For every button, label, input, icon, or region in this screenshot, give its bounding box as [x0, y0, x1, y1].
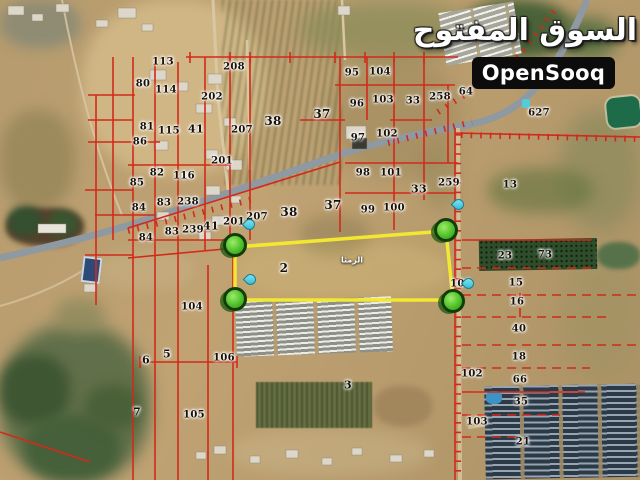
corner-marker — [434, 218, 458, 242]
corner-marker — [441, 289, 465, 313]
corner-marker — [223, 233, 247, 257]
corner-marker — [223, 287, 247, 311]
pin-arrow-icon — [451, 197, 467, 213]
opensooq-arabic-logo: السوق المفتوح — [413, 13, 637, 48]
listing-map-image: الرمثا 113208801142029510496103332586437… — [0, 0, 640, 480]
pin-arrow-icon — [242, 217, 258, 233]
pin-arrow-icon — [243, 272, 259, 288]
pin-arrow-icon — [461, 276, 477, 292]
opensooq-logo-badge: OpenSooq — [472, 57, 615, 89]
